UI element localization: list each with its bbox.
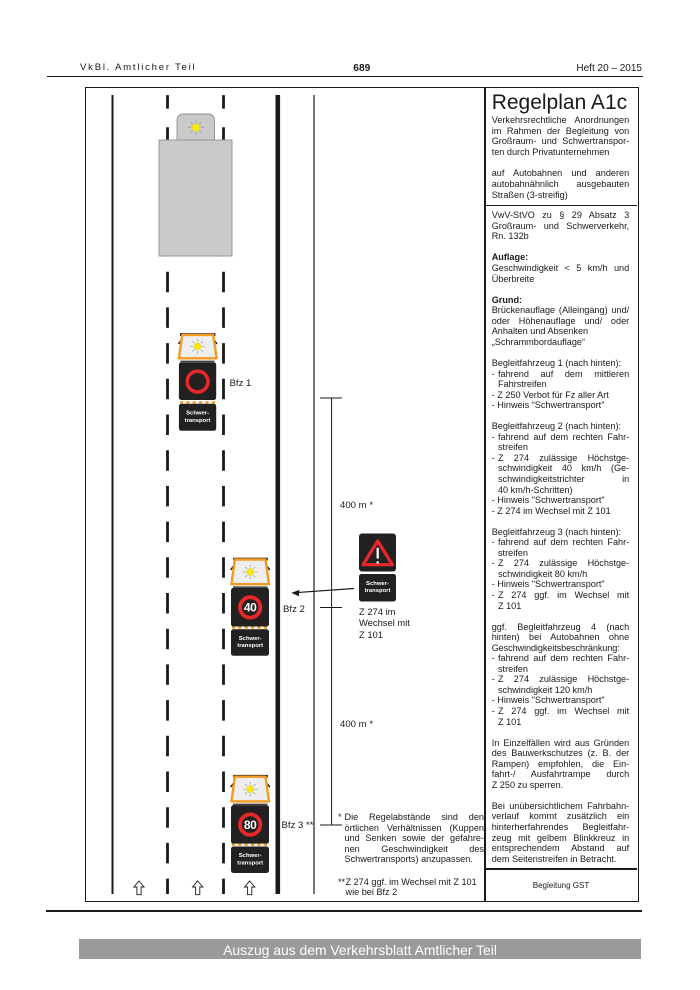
svg-text:80: 80 <box>244 818 257 832</box>
svg-text:transport: transport <box>185 418 211 424</box>
svg-text:Schwer-: Schwer- <box>186 411 209 417</box>
svg-text:transport: transport <box>237 643 263 649</box>
svg-text:transport: transport <box>365 588 391 594</box>
svg-text:Schwer-: Schwer- <box>239 853 262 859</box>
svg-text:Schwer-: Schwer- <box>239 636 262 642</box>
svg-text:transport: transport <box>237 860 263 866</box>
svg-text:40: 40 <box>244 601 257 615</box>
svg-text:Schwer-: Schwer- <box>366 581 389 587</box>
